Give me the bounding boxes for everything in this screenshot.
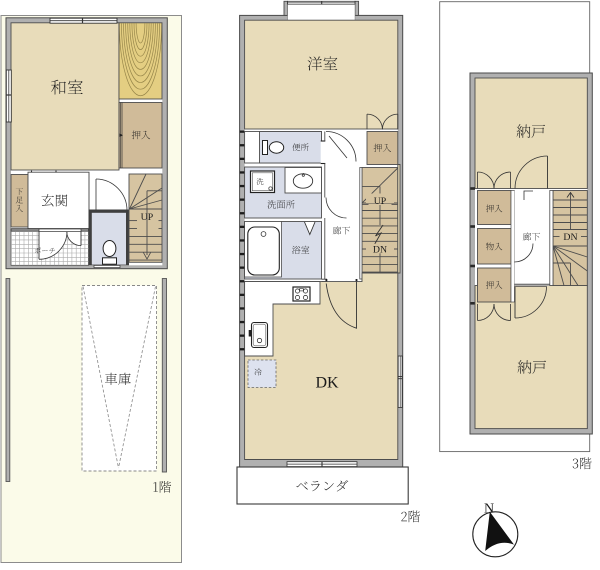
svg-text:DK: DK <box>315 375 339 392</box>
svg-text:UP: UP <box>374 196 387 207</box>
svg-text:DN: DN <box>373 244 387 255</box>
svg-text:UP: UP <box>141 212 154 223</box>
svg-text:N: N <box>484 502 494 517</box>
svg-text:DN: DN <box>563 232 577 243</box>
